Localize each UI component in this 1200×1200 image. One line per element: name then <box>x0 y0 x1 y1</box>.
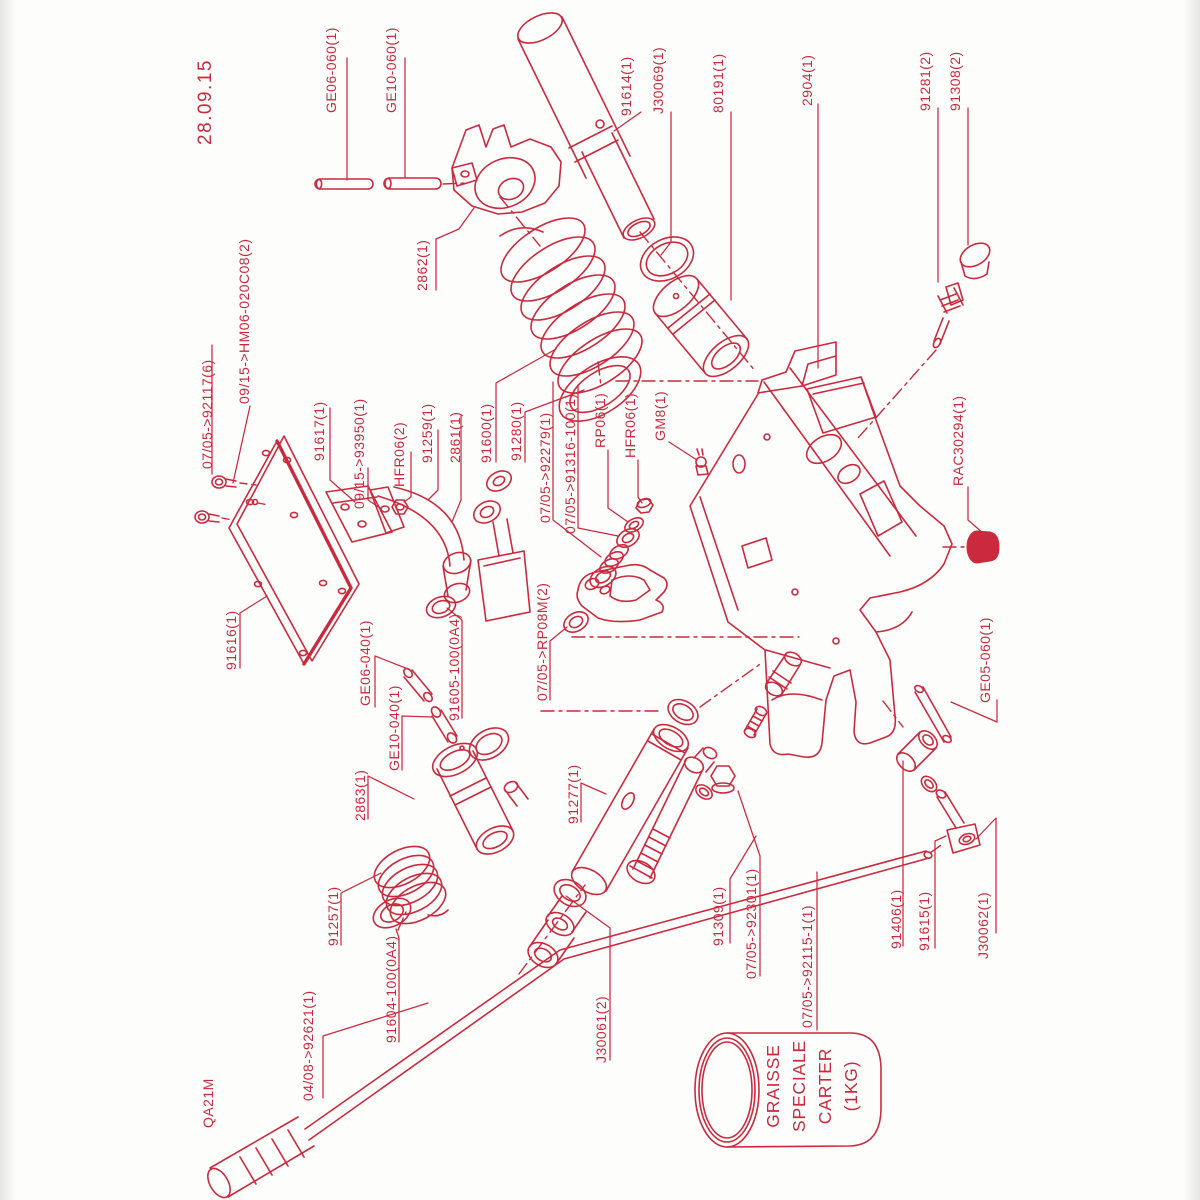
part-label-91316: 07/05->91316-100(1) <box>562 394 579 534</box>
part-label-91406: 91406(1) <box>888 889 905 949</box>
part-label-92279: 07/05->92279(1) <box>537 412 554 523</box>
part-label-91281: 91281(2) <box>917 51 934 111</box>
grease-can-text: GRAISSESPECIALECARTER(1KG) <box>760 1019 864 1153</box>
grease-can-text-line: CARTER <box>812 1019 838 1153</box>
part-label-92301: 07/05->92301(1) <box>743 868 760 979</box>
part-label-ge10-060: GE10-060(1) <box>383 27 400 113</box>
part-label-qa21m: QA21M <box>200 1078 217 1128</box>
part-label-rp06: RP06(1) <box>592 393 609 448</box>
part-label-j30062: J30062(1) <box>975 892 992 959</box>
part-label-ge06-060: GE06-060(1) <box>323 27 340 113</box>
part-label-ge05-060: GE05-060(1) <box>977 617 994 703</box>
part-label-91614: 91614(1) <box>618 56 635 116</box>
grease-can-text-line: (1KG) <box>838 1019 864 1153</box>
part-label-rp08m: 07/05->RP08M(2) <box>534 583 551 701</box>
part-label-91605: 91605-100(0A4) <box>446 614 463 722</box>
part-label-91277: 91277(1) <box>565 764 582 824</box>
part-label-hfr06-1: HFR06(1) <box>622 393 639 458</box>
part-label-91604: 91604-100(0A4) <box>383 936 400 1044</box>
part-label-92115: 07/05->92115-1(1) <box>799 905 816 1028</box>
part-label-j30069: J30069(1) <box>650 47 667 114</box>
part-label-92621: 04/08->92621(1) <box>300 990 317 1101</box>
part-label-ge10-040: GE10-040(1) <box>386 685 403 771</box>
part-label-2862: 2862(1) <box>414 240 431 291</box>
part-label-92117: 07/05->92117(6) <box>199 359 216 469</box>
part-label-91257: 91257(1) <box>325 886 342 946</box>
part-label-hm06: 09/15->HM06-020C08(2) <box>236 239 253 404</box>
grease-can-text-line: SPECIALE <box>786 1019 812 1153</box>
part-label-date: 28.09.15 <box>197 59 214 145</box>
grease-can-text-line: GRAISSE <box>760 1019 786 1153</box>
part-label-gm8: GM8(1) <box>652 391 669 441</box>
part-label-91616: 91616(1) <box>223 610 240 670</box>
part-label-2861: 2861(1) <box>447 412 464 463</box>
part-label-80191: 80191(1) <box>710 53 727 113</box>
part-label-91280: 91280(1) <box>508 401 525 461</box>
part-labels-layer: 28.09.15GE06-060(1)GE10-060(1)2862(1)916… <box>0 0 1200 1200</box>
part-label-rac30294: RAC30294(1) <box>950 395 967 486</box>
part-label-91308: 91308(2) <box>947 51 964 111</box>
part-label-j30061: J30061(2) <box>593 996 610 1063</box>
part-label-2863: 2863(1) <box>352 770 369 821</box>
part-label-hfr06-2: HFR06(2) <box>391 422 408 487</box>
part-label-2904: 2904(1) <box>799 55 816 106</box>
part-label-91259: 91259(1) <box>419 403 436 463</box>
part-label-93950: 09/15->93950(1) <box>351 398 368 509</box>
part-label-91309: 91309(1) <box>710 886 727 946</box>
diagram-page: 28.09.15GE06-060(1)GE10-060(1)2862(1)916… <box>0 0 1200 1200</box>
part-label-91600: 91600(1) <box>478 403 495 463</box>
part-label-91615: 91615(1) <box>916 891 933 951</box>
part-label-ge06-040: GE06-040(1) <box>357 620 374 706</box>
part-label-91617: 91617(1) <box>311 401 328 461</box>
